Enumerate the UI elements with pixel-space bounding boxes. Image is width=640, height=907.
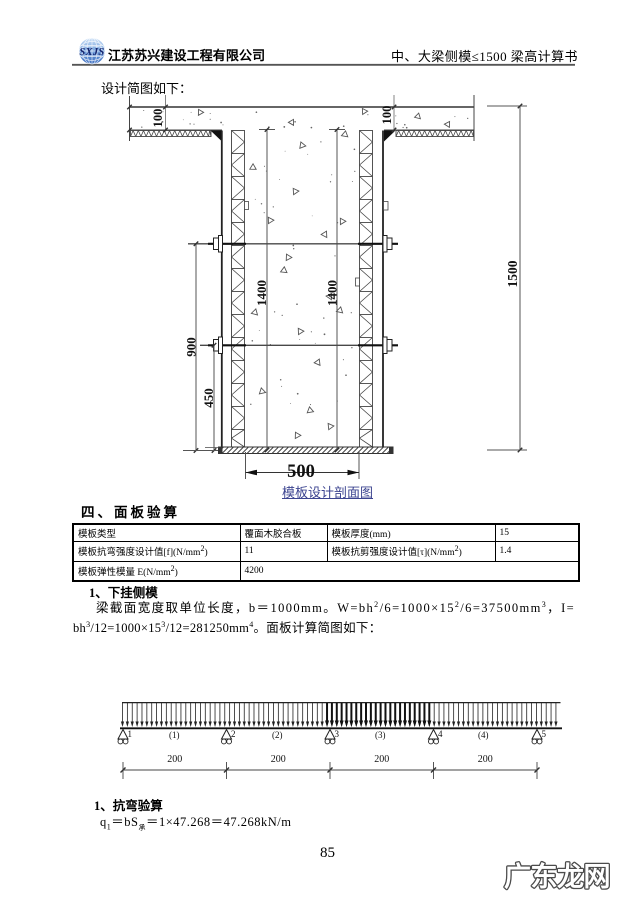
- svg-text:(3): (3): [375, 730, 386, 740]
- svg-text:5: 5: [542, 729, 547, 739]
- svg-text:2: 2: [231, 729, 236, 739]
- svg-text:1400: 1400: [254, 280, 269, 306]
- svg-text:200: 200: [167, 754, 182, 765]
- svg-text:4: 4: [438, 729, 443, 739]
- svg-text:(4): (4): [478, 730, 489, 740]
- svg-text:1400: 1400: [325, 280, 340, 306]
- svg-text:(1): (1): [169, 730, 180, 740]
- svg-text:200: 200: [478, 754, 493, 765]
- svg-text:200: 200: [374, 754, 389, 765]
- svg-text:500: 500: [287, 462, 315, 482]
- svg-text:1: 1: [128, 729, 133, 739]
- svg-text:1500: 1500: [505, 260, 520, 287]
- svg-text:(2): (2): [272, 730, 283, 740]
- svg-text:100: 100: [380, 106, 394, 125]
- svg-text:450: 450: [201, 388, 216, 408]
- svg-text:广东龙网: 广东龙网: [504, 861, 610, 892]
- svg-text:200: 200: [271, 754, 286, 765]
- svg-text:3: 3: [335, 729, 340, 739]
- svg-text:900: 900: [184, 337, 199, 357]
